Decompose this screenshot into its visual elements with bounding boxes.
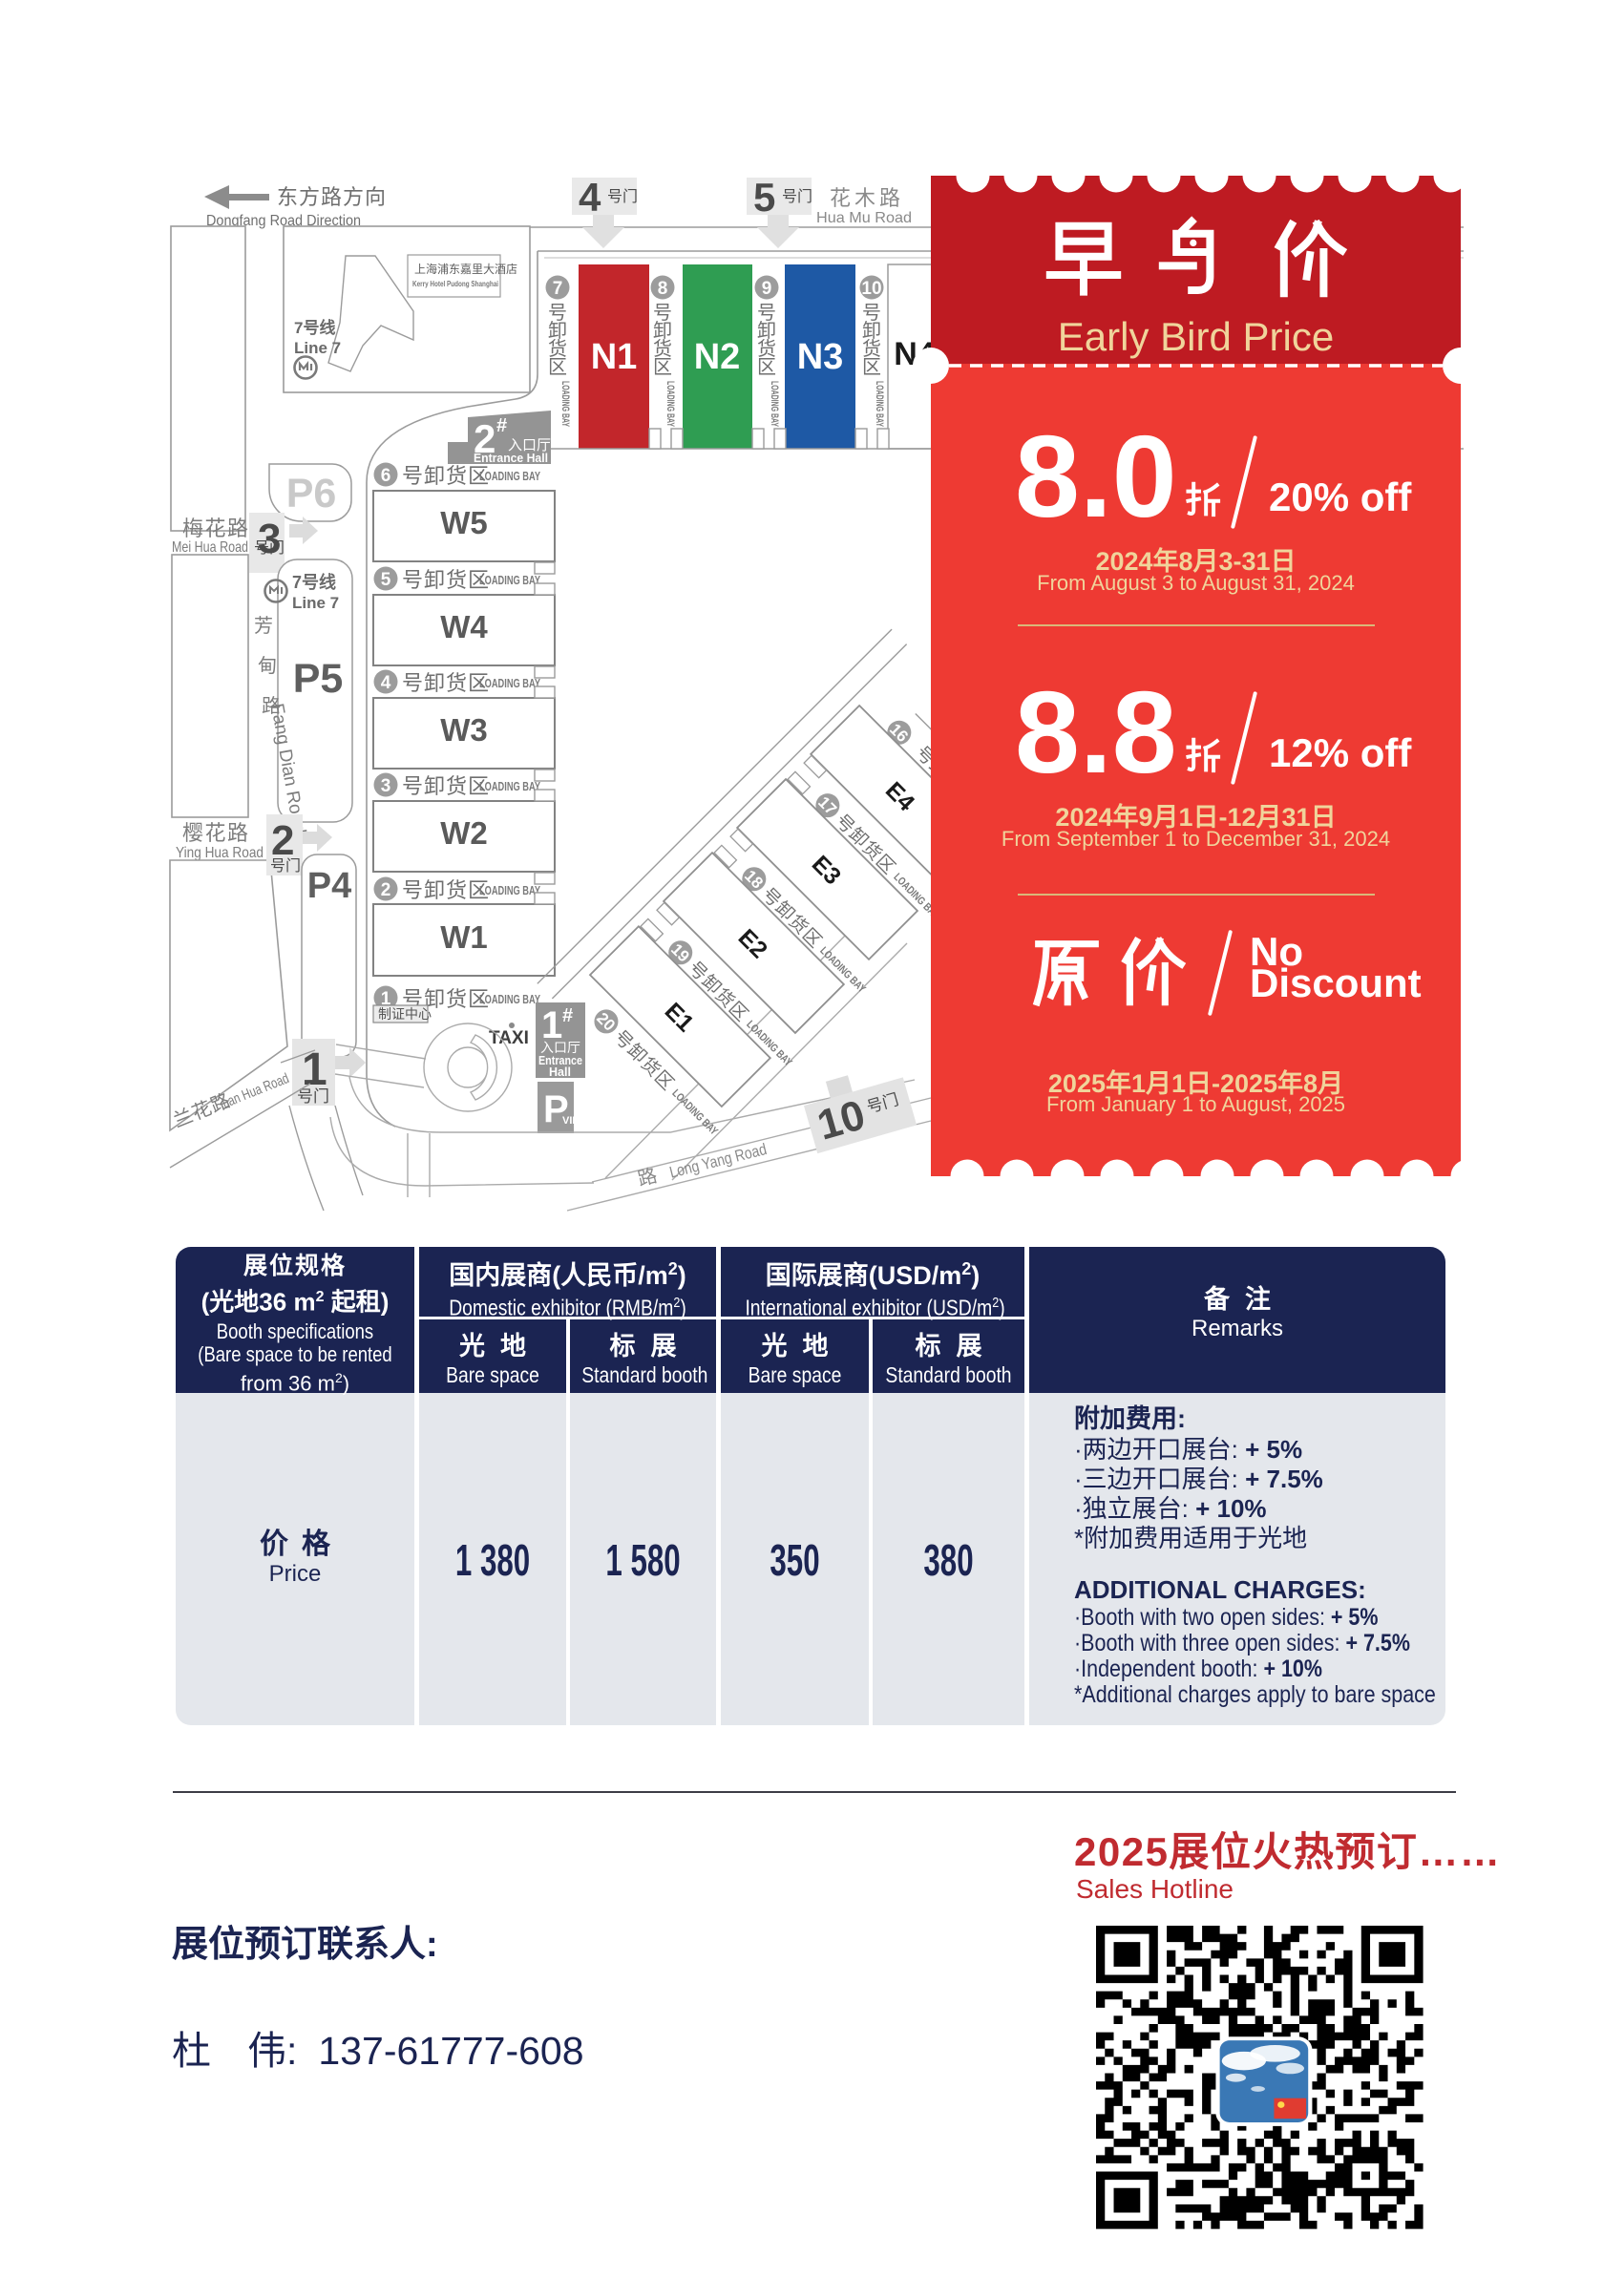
svg-text:Hall: Hall (549, 1065, 571, 1079)
svg-text:号卸货区: 号卸货区 (402, 774, 490, 798)
svg-text:P6: P6 (286, 471, 337, 517)
svg-text:号门: 号门 (782, 188, 812, 205)
svg-text:P4: P4 (307, 866, 351, 906)
svg-text:5: 5 (753, 175, 775, 220)
svg-text:Hua Mu Road: Hua Mu Road (816, 210, 912, 226)
svg-text:Long Yang Road: Long Yang Road (667, 1140, 769, 1182)
svg-text:甸: 甸 (258, 655, 277, 677)
svg-text:LOADING BAY: LOADING BAY (479, 470, 540, 483)
svg-text:号门: 号门 (607, 188, 638, 205)
svg-text:区: 区 (653, 357, 672, 378)
svg-text:樱花路: 樱花路 (182, 821, 250, 845)
svg-text:W2: W2 (440, 815, 488, 851)
svg-text:LOADING BAY: LOADING BAY (479, 993, 540, 1006)
svg-text:20: 20 (593, 1009, 619, 1035)
svg-text:LOADING BAY: LOADING BAY (479, 884, 540, 897)
svg-text:7号线: 7号线 (294, 318, 335, 337)
svg-text:P5: P5 (293, 656, 344, 702)
svg-text:8: 8 (658, 279, 668, 299)
svg-text:N1: N1 (591, 337, 638, 377)
svg-text:东方路方向: 东方路方向 (277, 185, 387, 209)
svg-text:Kerry Hotel Pudong Shanghai: Kerry Hotel Pudong Shanghai (412, 280, 498, 288)
svg-text:区: 区 (862, 357, 881, 378)
svg-text:芳: 芳 (254, 615, 273, 637)
svg-text:N3: N3 (797, 337, 844, 377)
svg-text:LOADING BAY: LOADING BAY (559, 381, 571, 427)
svg-text:LOADING BAY: LOADING BAY (769, 381, 780, 427)
svg-text:LOADING BAY: LOADING BAY (479, 677, 540, 690)
svg-text:9: 9 (762, 279, 772, 299)
svg-text:#: # (562, 1005, 573, 1026)
svg-text:Line 7: Line 7 (294, 339, 341, 357)
svg-text:入口厅: 入口厅 (540, 1040, 580, 1055)
svg-text:VIP: VIP (562, 1115, 580, 1127)
svg-text:号卸货区: 号卸货区 (402, 464, 490, 488)
svg-text:制证中心: 制证中心 (378, 1006, 432, 1022)
svg-text:LOADING BAY: LOADING BAY (479, 574, 540, 587)
svg-text:W1: W1 (440, 919, 488, 955)
svg-text:号门: 号门 (254, 539, 285, 557)
svg-text:W3: W3 (440, 712, 488, 748)
svg-text:号门: 号门 (270, 857, 301, 875)
svg-text:W4: W4 (440, 609, 488, 644)
svg-text:号卸货区: 号卸货区 (402, 568, 490, 592)
svg-text:7: 7 (553, 279, 563, 299)
svg-text:上海浦东嘉里大酒店: 上海浦东嘉里大酒店 (414, 262, 517, 276)
svg-text:LOADING BAY: LOADING BAY (664, 381, 676, 427)
svg-text:号卸货区: 号卸货区 (402, 671, 490, 695)
svg-text:LOADING BAY: LOADING BAY (479, 780, 540, 793)
svg-text:2: 2 (271, 817, 294, 864)
svg-text:4: 4 (381, 673, 391, 693)
svg-text:6: 6 (381, 466, 391, 486)
svg-text:3: 3 (381, 776, 391, 796)
svg-text:LOADING BAY: LOADING BAY (874, 381, 885, 427)
svg-text:4: 4 (579, 175, 601, 220)
svg-text:号卸货区: 号卸货区 (402, 878, 490, 902)
svg-text:W5: W5 (440, 505, 488, 540)
svg-text:Mei Hua Road: Mei Hua Road (172, 539, 248, 556)
svg-text:区: 区 (757, 357, 776, 378)
svg-text:Line 7: Line 7 (292, 594, 339, 612)
svg-text:5: 5 (381, 570, 391, 590)
svg-text:Entrance Hall: Entrance Hall (474, 451, 548, 465)
svg-text:#: # (496, 415, 507, 436)
svg-text:梅花路: 梅花路 (182, 517, 250, 540)
svg-text:区: 区 (548, 357, 567, 378)
svg-text:N2: N2 (694, 337, 741, 377)
svg-text:号门: 号门 (297, 1087, 329, 1106)
svg-text:TAXI: TAXI (489, 1028, 529, 1048)
svg-text:7号线: 7号线 (292, 572, 336, 592)
svg-text:2: 2 (381, 880, 391, 900)
svg-text:10: 10 (861, 279, 881, 299)
svg-text:花木路: 花木路 (830, 186, 904, 210)
svg-text:Ying Hua Road: Ying Hua Road (176, 845, 264, 861)
svg-text:路: 路 (636, 1165, 660, 1191)
